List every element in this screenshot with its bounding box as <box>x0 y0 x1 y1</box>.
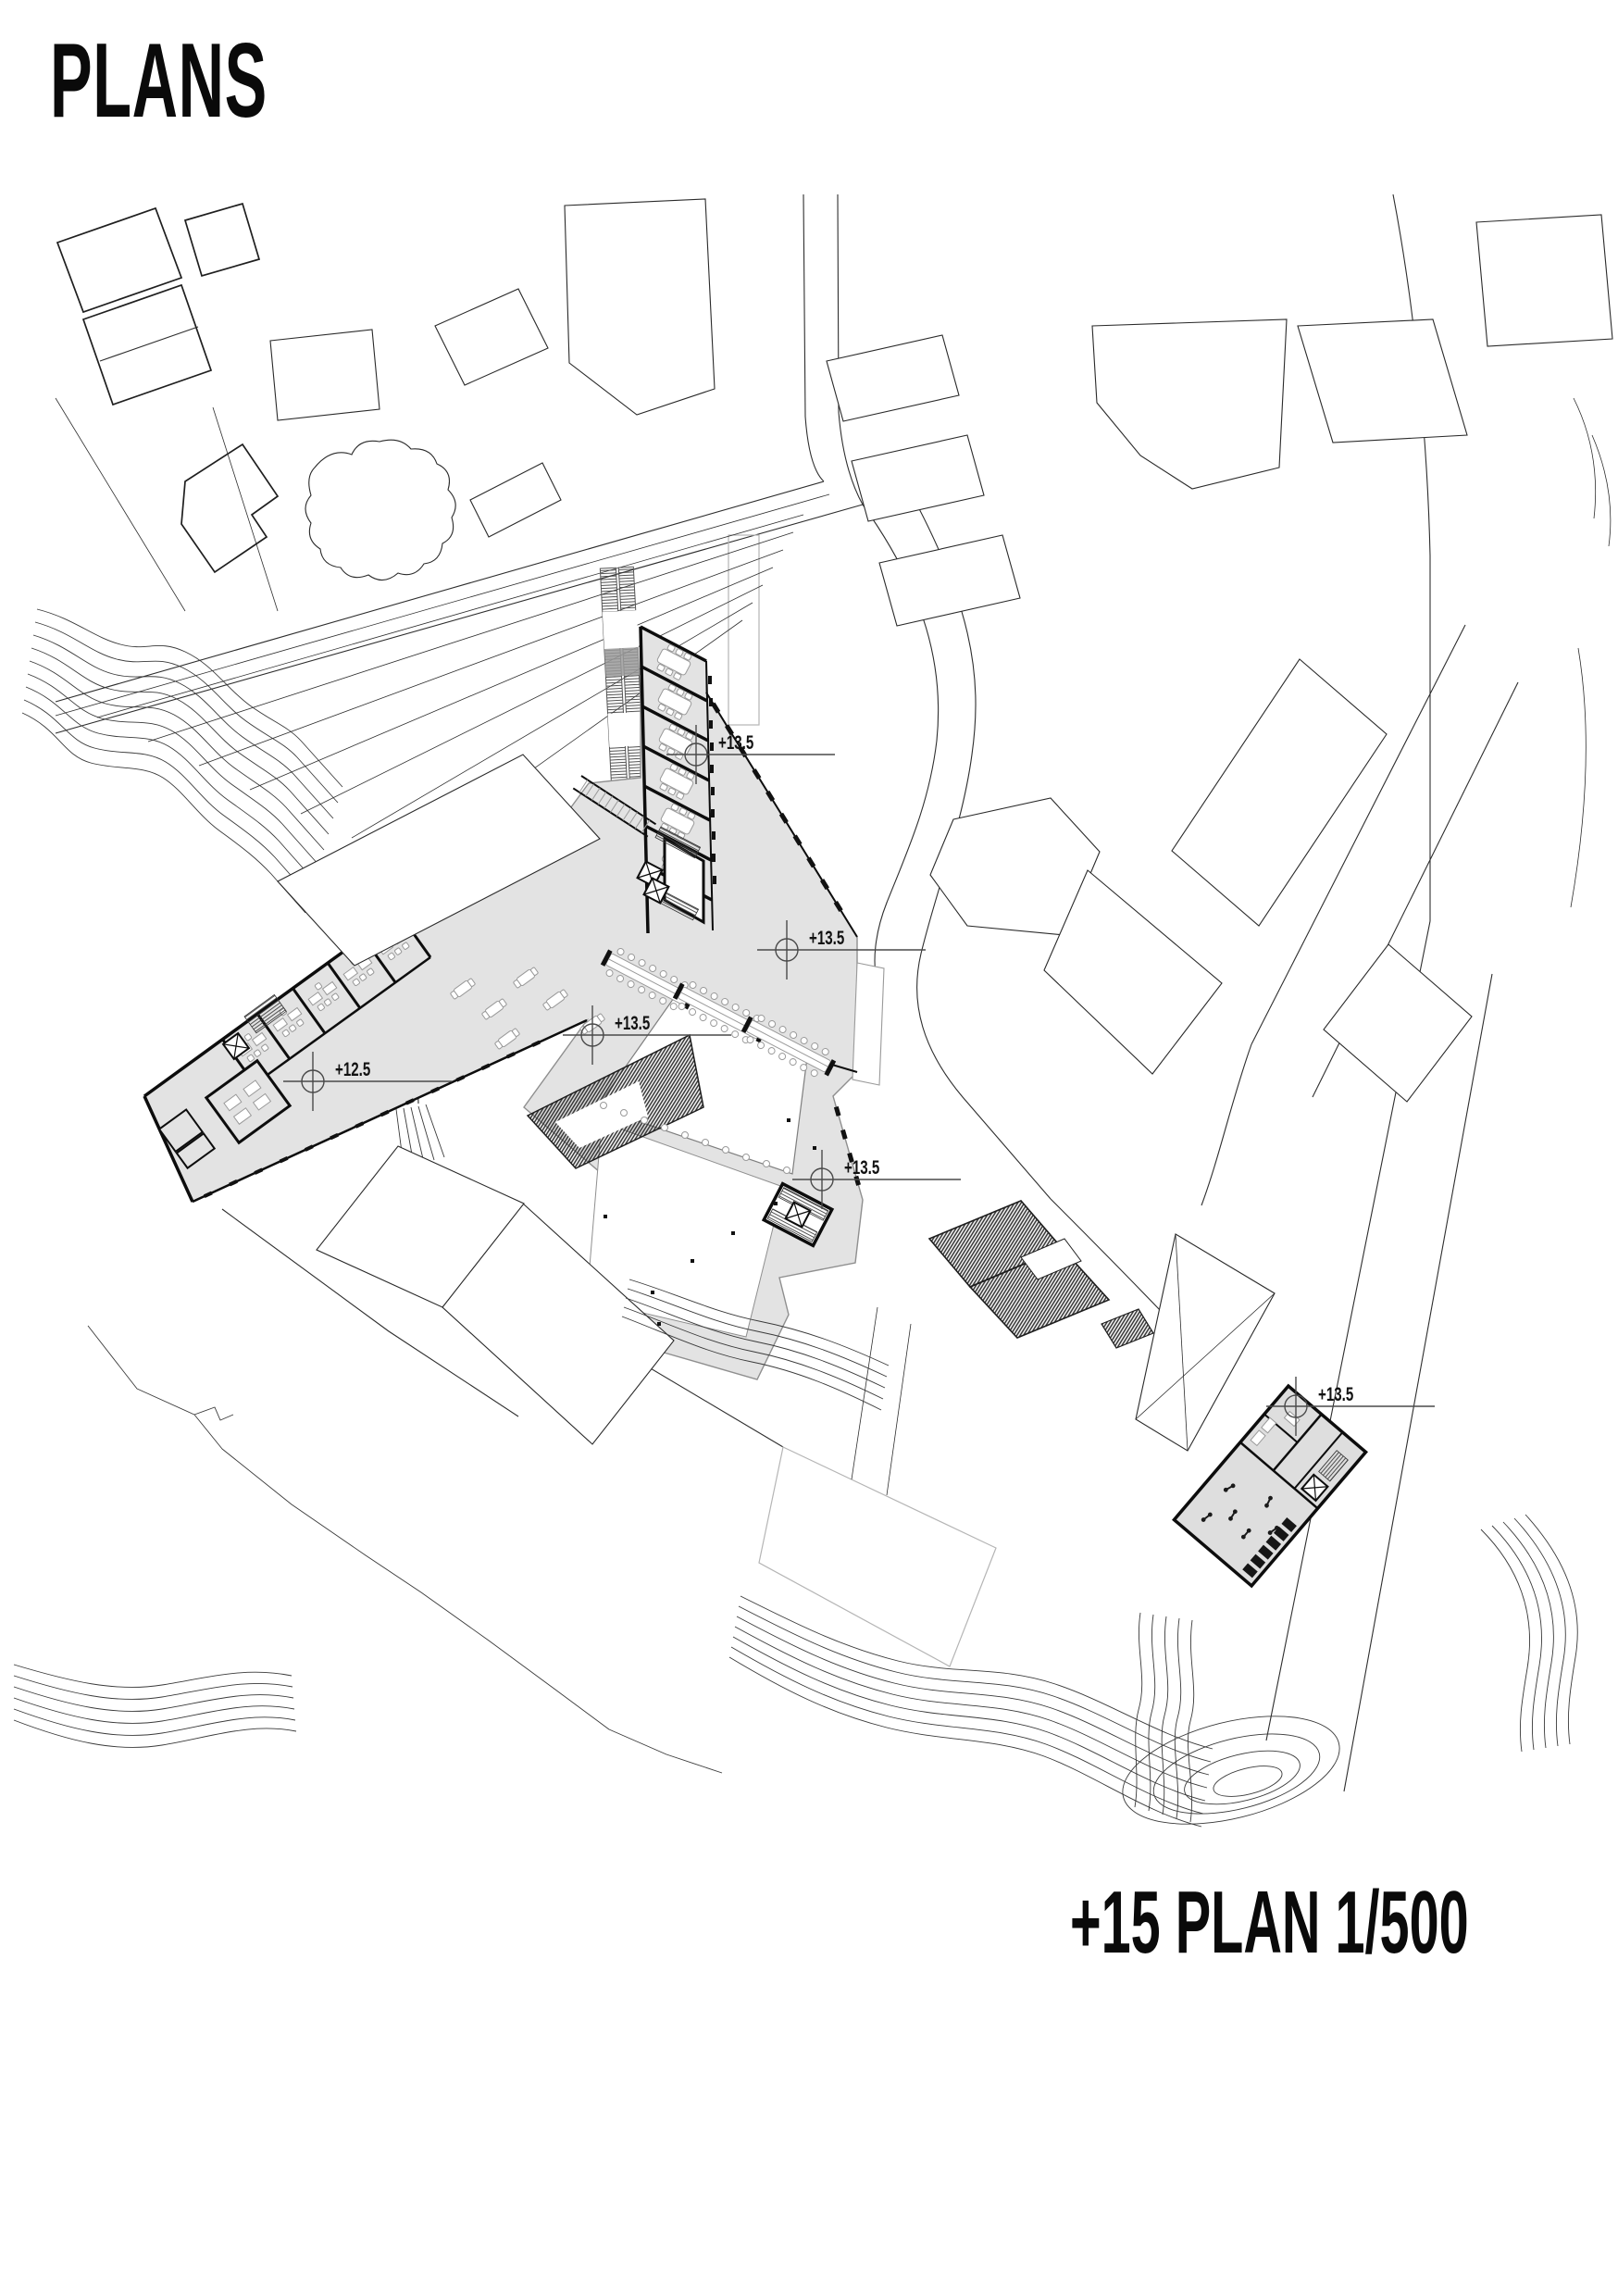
level-marker-label: +13.5 <box>844 1155 879 1178</box>
dark-hatched-roofs <box>929 1201 1275 1451</box>
plan-caption: +15 PLAN 1/500 <box>1070 1872 1469 1974</box>
contour-lines-south <box>14 1279 1577 1843</box>
tree-canopy <box>305 440 455 580</box>
hipped-roof-building <box>1136 1234 1275 1451</box>
level-marker-label: +13.5 <box>1318 1382 1353 1404</box>
level-marker-label: +13.5 <box>809 926 844 948</box>
context-buildings-northwest <box>56 199 715 611</box>
level-marker-label: +12.5 <box>335 1057 370 1079</box>
plan-sheet: PLANS <box>0 0 1618 2296</box>
level-marker-label: +13.5 <box>718 730 753 753</box>
level-marker-label: +13.5 <box>615 1011 650 1033</box>
context-buildings-northeast <box>827 215 1612 1102</box>
